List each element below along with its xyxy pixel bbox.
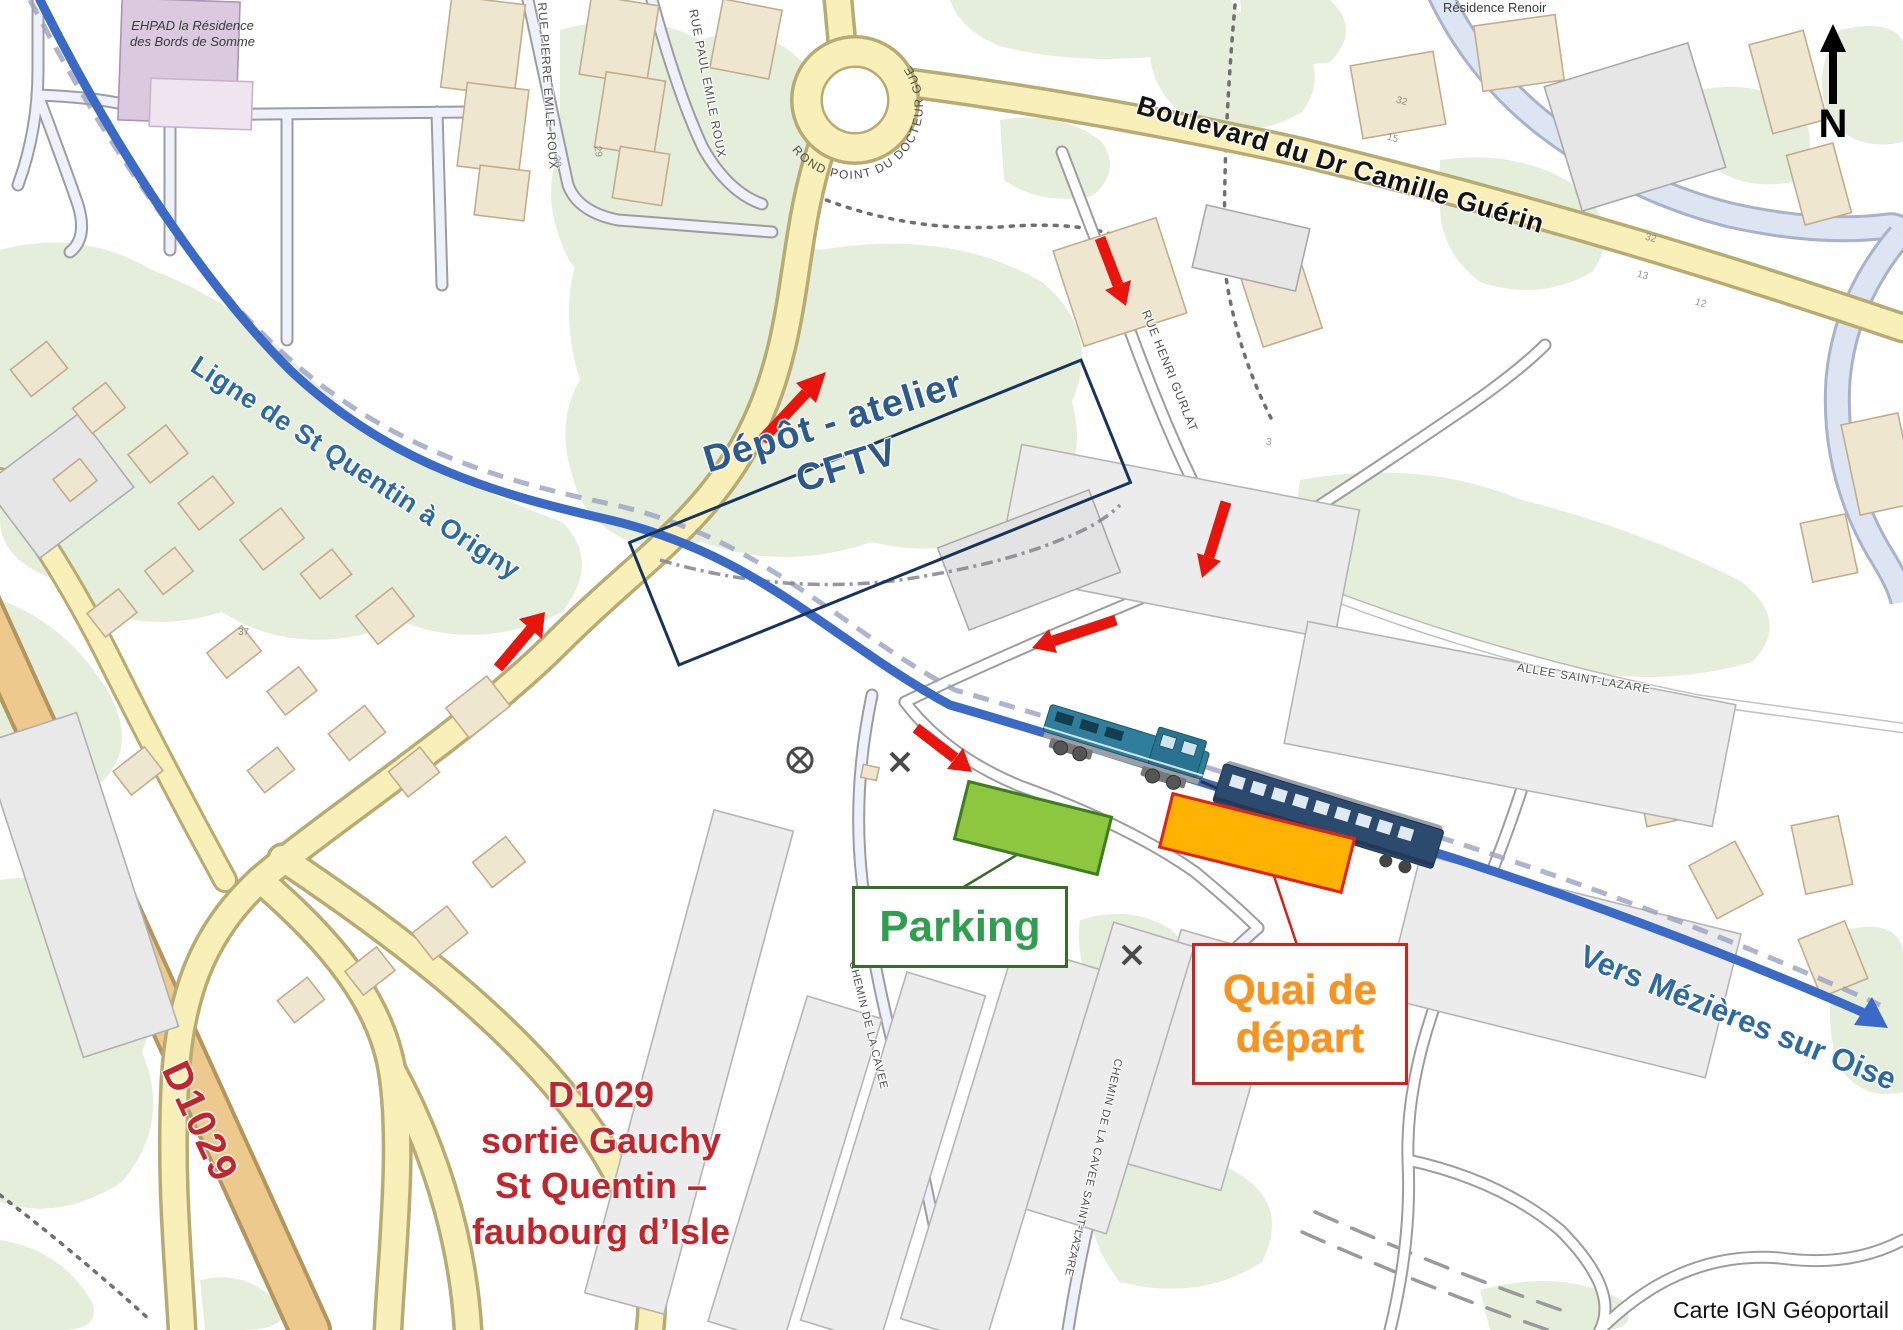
house-number: 30 <box>550 155 562 168</box>
exit-note-d1029: D1029 sortie Gauchy St Quentin – faubour… <box>436 1072 766 1255</box>
map-attribution: Carte IGN Géoportail <box>1673 1297 1889 1324</box>
ign-basemap: ROND POINT DU DOCTEUR GUERIN <box>0 0 1903 1330</box>
poi-label-residence-renoir: Résidence Renoir <box>1443 0 1546 16</box>
parking-label-box: Parking <box>852 886 1068 968</box>
crossing-x-icon <box>891 753 909 771</box>
poi-label-ehpad: EHPAD la Résidence des Bords de Somme <box>95 18 290 51</box>
house-number: 29 <box>591 145 603 158</box>
north-label: N <box>1810 102 1856 147</box>
circle-x-icon <box>788 748 812 772</box>
parking-label: Parking <box>879 902 1040 952</box>
access-map-figure: ROND POINT DU DOCTEUR GUERIN <box>0 0 1903 1330</box>
departure-platform-label-box: Quai de départ <box>1192 943 1408 1085</box>
house-number: 37 <box>238 627 249 638</box>
